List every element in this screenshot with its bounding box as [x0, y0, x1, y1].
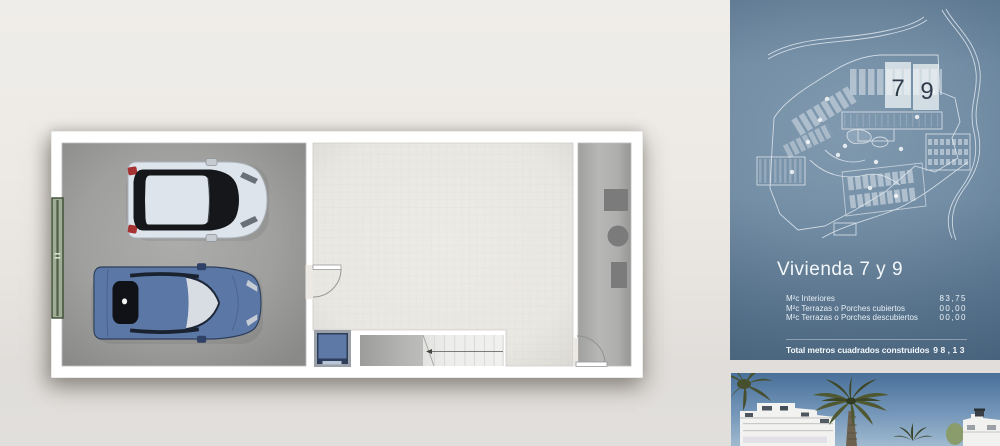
svg-text:9: 9 [920, 78, 933, 105]
svg-text:7: 7 [891, 75, 904, 102]
